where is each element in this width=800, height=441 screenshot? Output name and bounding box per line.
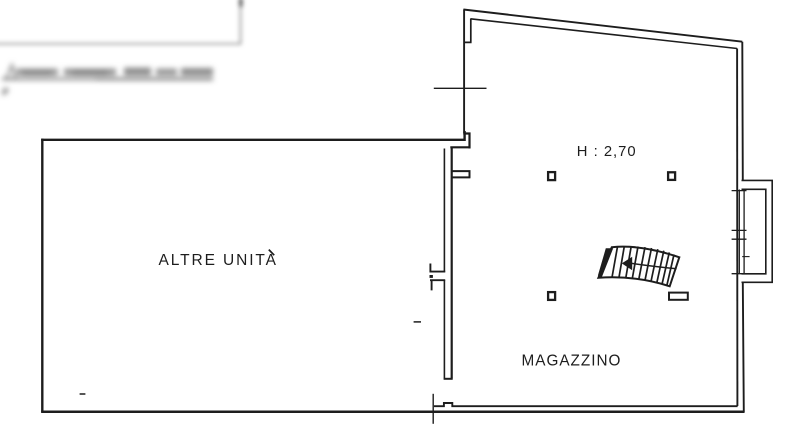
svg-text:MAGAZZINO: MAGAZZINO bbox=[522, 352, 622, 369]
svg-text:ALTRE UNITA: ALTRE UNITA bbox=[159, 252, 278, 269]
svg-text:H : 2,70: H : 2,70 bbox=[577, 144, 637, 160]
